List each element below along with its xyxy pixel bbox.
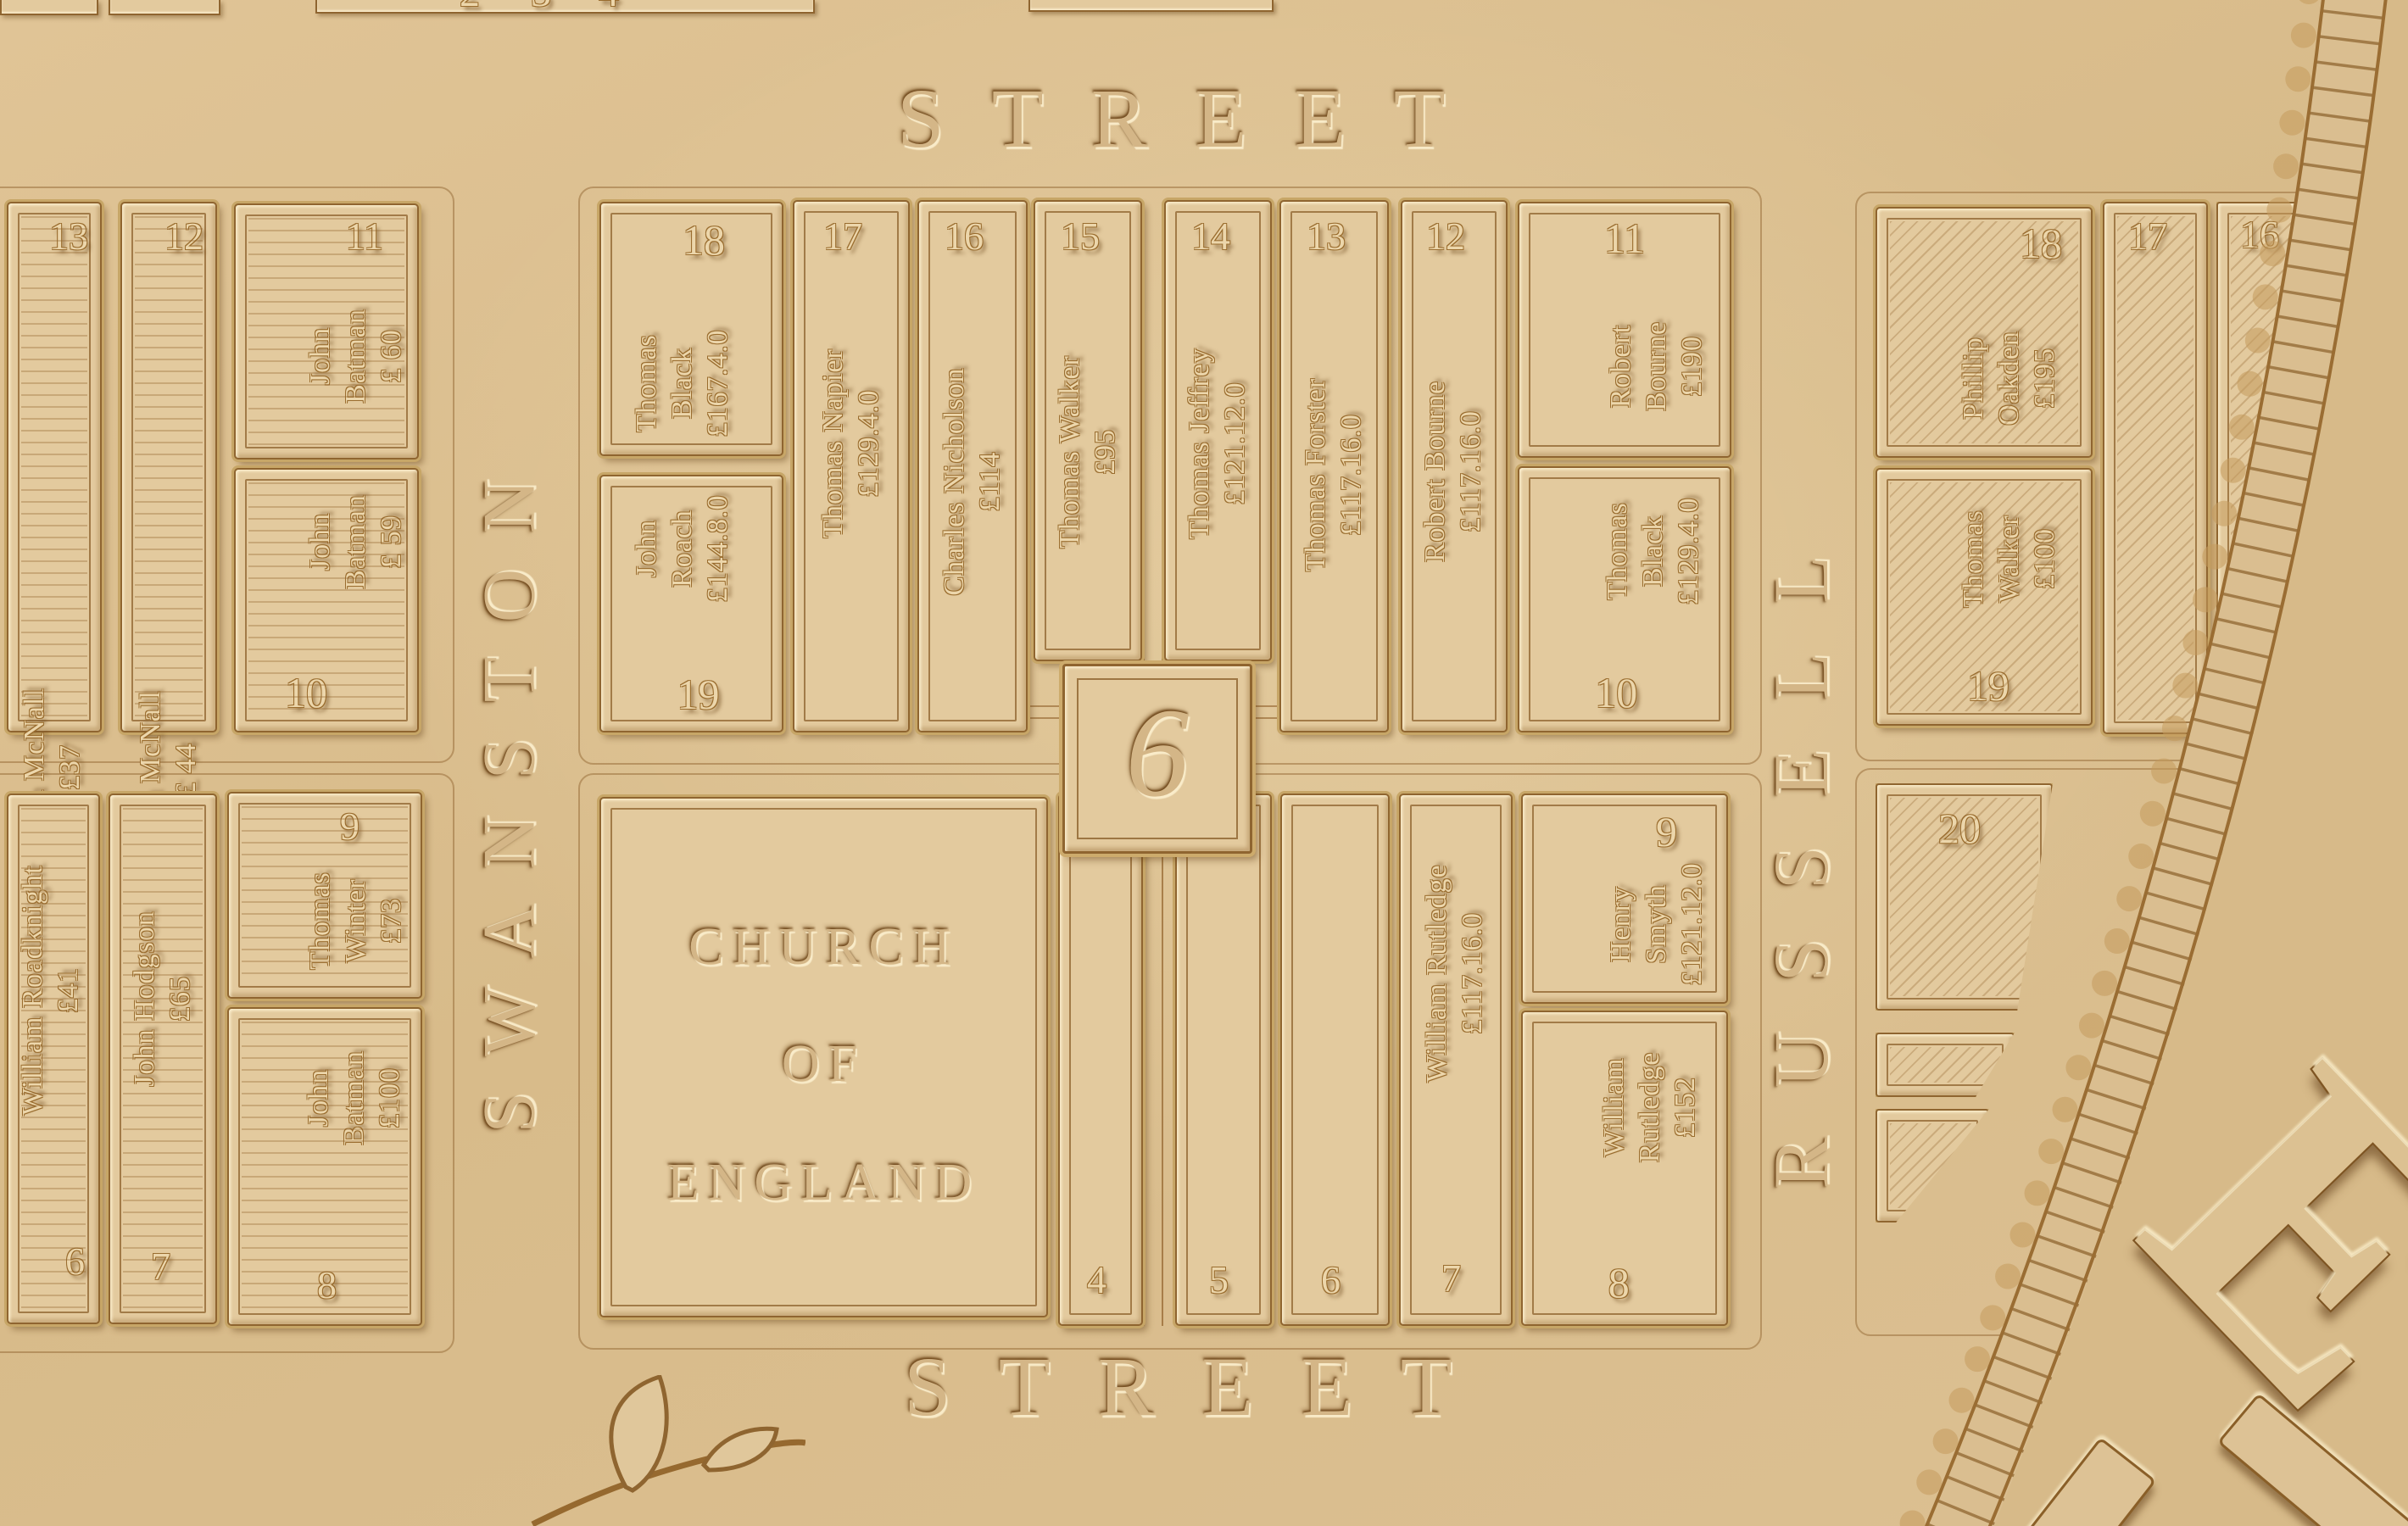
owner-name: Charles Nicholson — [937, 367, 973, 595]
lot-bottom-4: 4 — [1058, 794, 1143, 1326]
owner-name: William Roadknight — [15, 865, 51, 1115]
lot-price: £144.8.0 — [700, 495, 736, 603]
owner-name: William Rutledge — [1419, 864, 1455, 1082]
owner-name: Black — [665, 330, 700, 437]
lot-left-10: John Batman £ 59 10 — [234, 468, 419, 732]
owner-name: Thomas — [629, 330, 665, 437]
lot-number: 14 — [1191, 214, 1230, 259]
lot-number: 13 — [49, 214, 88, 259]
lot-number: 9 — [1656, 807, 1677, 856]
lot-price: £ 60 — [374, 309, 410, 404]
owner-name: Robert Bourne — [1418, 381, 1453, 562]
lot-number: 16 — [2240, 212, 2279, 257]
owner-name: Rutledge — [1632, 1052, 1668, 1163]
lot-bottom-9: 9 Henry Smyth £121.12.0 — [1521, 794, 1728, 1004]
lot-price: £129.4.0 — [1671, 498, 1707, 605]
lot-number: 19 — [677, 670, 719, 719]
owner-name: William — [1597, 1052, 1632, 1163]
owner-name: Robert — [1603, 321, 1639, 411]
laurel-leaf-ornament — [526, 1375, 805, 1526]
lot-price: £117.16.0 — [1453, 381, 1489, 562]
owner-name: Batman — [337, 1050, 372, 1145]
lot-left-13: 13 John McNall £37 — [7, 202, 102, 732]
owner-name: Henry — [1603, 863, 1639, 986]
top-edge-plate — [109, 0, 220, 15]
lot-number: 19 — [1967, 661, 2009, 710]
lot-right-17: 17 — [2103, 202, 2208, 734]
lot-number: 5 — [1209, 1257, 1229, 1302]
owner-name: Walker — [1992, 510, 2027, 608]
owner-name: Phillip — [1956, 331, 1992, 426]
owner-name: John — [301, 1050, 337, 1145]
lot-bottom-5: 5 — [1175, 794, 1272, 1326]
church-label: CHURCH — [688, 917, 958, 977]
lot-number: 17 — [2128, 214, 2167, 259]
lot-number: 8 — [1608, 1258, 1630, 1307]
owner-name: John Hodgson — [127, 911, 163, 1087]
owner-name: John — [303, 309, 338, 404]
lot-center-17: 17 Thomas Napier £129.4.0 — [793, 200, 910, 732]
owner-name: Batman — [338, 494, 374, 589]
lane-line — [1029, 705, 1062, 719]
partial-lot-number: 3 — [531, 0, 551, 14]
street-name-top: STREET — [897, 70, 1493, 167]
lot-center-11: 11 Robert Bourne £190 — [1518, 202, 1731, 458]
lot-number: 18 — [683, 215, 725, 265]
partial-lot-number: 2 — [460, 0, 480, 14]
top-edge-plate: 2 3 4 — [315, 0, 815, 14]
owner-name: Thomas — [303, 872, 338, 970]
owner-name: John — [303, 494, 338, 589]
lot-price: £190 — [1675, 321, 1710, 411]
coin-map-face: 13 John McNall £37 12 John McNall £ 44 1… — [0, 0, 2408, 1526]
lot-price: £65 — [163, 911, 198, 1087]
lot-bottom-8: William Rutledge £152 8 — [1521, 1011, 1728, 1326]
lot-number: 11 — [1604, 214, 1645, 263]
owner-name: Bourne — [1639, 321, 1675, 411]
lot-price: £73 — [374, 872, 410, 970]
rim-letter-partial — [1998, 1437, 2157, 1526]
top-edge-plate — [1028, 0, 1274, 12]
lot-number: 13 — [1307, 214, 1346, 259]
owner-name: Thomas Napier — [816, 348, 851, 538]
lot-price: £114 — [973, 367, 1008, 595]
lot-price: £95 — [1088, 355, 1123, 549]
owner-name: Thomas — [1600, 498, 1636, 605]
lot-left-6: William Roadknight £41 6 — [7, 794, 100, 1324]
lot-number: 15 — [1061, 214, 1100, 259]
owner-name: Smyth — [1639, 863, 1675, 986]
owner-name: Batman — [338, 309, 374, 404]
lot-center-18: 18 Thomas Black £167.4.0 — [599, 202, 783, 456]
lot-number: 9 — [340, 804, 360, 849]
lane-line — [1143, 621, 1163, 663]
owner-name: Thomas Forster — [1298, 378, 1334, 571]
owner-name: Thomas — [1956, 510, 1992, 608]
lot-bottom-6: 6 — [1280, 794, 1390, 1326]
lot-center-16: 16 Charles Nicholson £114 — [917, 200, 1028, 732]
lot-price: £100 — [2027, 510, 2063, 608]
owner-name: Winter — [338, 872, 374, 970]
lot-number: 8 — [317, 1262, 337, 1307]
lot-left-9: 9 Thomas Winter £73 — [227, 792, 422, 999]
lot-price: £100 — [372, 1050, 408, 1145]
lot-number: 16 — [945, 214, 984, 259]
top-edge-plate — [0, 0, 98, 15]
lot-number: 12 — [164, 214, 203, 259]
street-name-bottom: STREET — [904, 1338, 1500, 1435]
lot-center-15: 15 Thomas Walker £95 — [1034, 200, 1142, 661]
lot-right-19: Thomas Walker £100 19 — [1876, 468, 2093, 726]
lot-number: 12 — [1426, 214, 1465, 259]
lot-church-reserve: CHURCH OF ENGLAND — [599, 797, 1048, 1317]
lot-price: £ 59 — [374, 494, 410, 589]
lot-price: £41 — [51, 865, 86, 1115]
block-6-marker: 6 — [1062, 664, 1252, 854]
lot-left-11: 11 John Batman £ 60 — [234, 203, 419, 459]
lot-left-7: John Hodgson £65 7 — [109, 794, 217, 1324]
lot-price: £167.4.0 — [700, 330, 736, 437]
lot-center-14: 14 Thomas Jeffrey £121.12.0 — [1164, 200, 1272, 661]
lot-center-10: Thomas Black £129.4.0 10 — [1518, 466, 1731, 732]
lot-right-18: 18 Phillip Oakden £195 — [1876, 207, 2093, 458]
owner-name: Roach — [665, 495, 700, 603]
owner-name: Oakden — [1992, 331, 2027, 426]
lot-number: 10 — [1595, 668, 1637, 717]
lot-left-8: John Batman £100 8 — [227, 1007, 422, 1326]
owner-name: Thomas Walker — [1052, 355, 1088, 549]
lot-number: 4 — [1087, 1257, 1106, 1302]
lot-number: 7 — [1441, 1256, 1461, 1300]
lot-center-13: 13 Thomas Forster £117.16.0 — [1279, 200, 1389, 732]
lot-number: 17 — [823, 214, 862, 259]
lot-price: £129.4.0 — [851, 348, 887, 538]
lot-number: 7 — [151, 1244, 170, 1289]
owner-name: Black — [1636, 498, 1671, 605]
lot-bottom-7: William Rutledge £117.16.0 7 — [1399, 794, 1513, 1326]
lot-number: 10 — [285, 668, 327, 717]
lot-left-12: 12 John McNall £ 44 — [120, 202, 217, 732]
owner-name: John — [629, 495, 665, 603]
church-label: OF — [782, 1034, 866, 1094]
lot-center-19: John Roach £144.8.0 19 — [599, 475, 783, 732]
lot-price: £152 — [1668, 1052, 1703, 1163]
church-label: ENGLAND — [667, 1153, 981, 1213]
lane-line — [1143, 849, 1163, 1326]
lot-number: 6 — [65, 1239, 85, 1284]
lot-number: 6 — [1321, 1257, 1341, 1302]
lot-price: £121.12.0 — [1218, 348, 1253, 539]
lot-price: £195 — [2027, 331, 2063, 426]
owner-name: Thomas Jeffrey — [1182, 348, 1218, 539]
lot-number: 20 — [1938, 804, 1981, 853]
lot-price: £117.16.0 — [1455, 864, 1491, 1082]
lot-price: £121.12.0 — [1675, 863, 1710, 986]
partial-lot-number: 4 — [599, 0, 619, 14]
lot-price: £117.16.0 — [1334, 378, 1369, 571]
lot-number: 18 — [2020, 219, 2062, 268]
lot-number: 11 — [346, 214, 383, 259]
lot-center-12: 12 Robert Bourne £117.16.0 — [1401, 200, 1508, 732]
block-number: 6 — [1126, 680, 1190, 826]
